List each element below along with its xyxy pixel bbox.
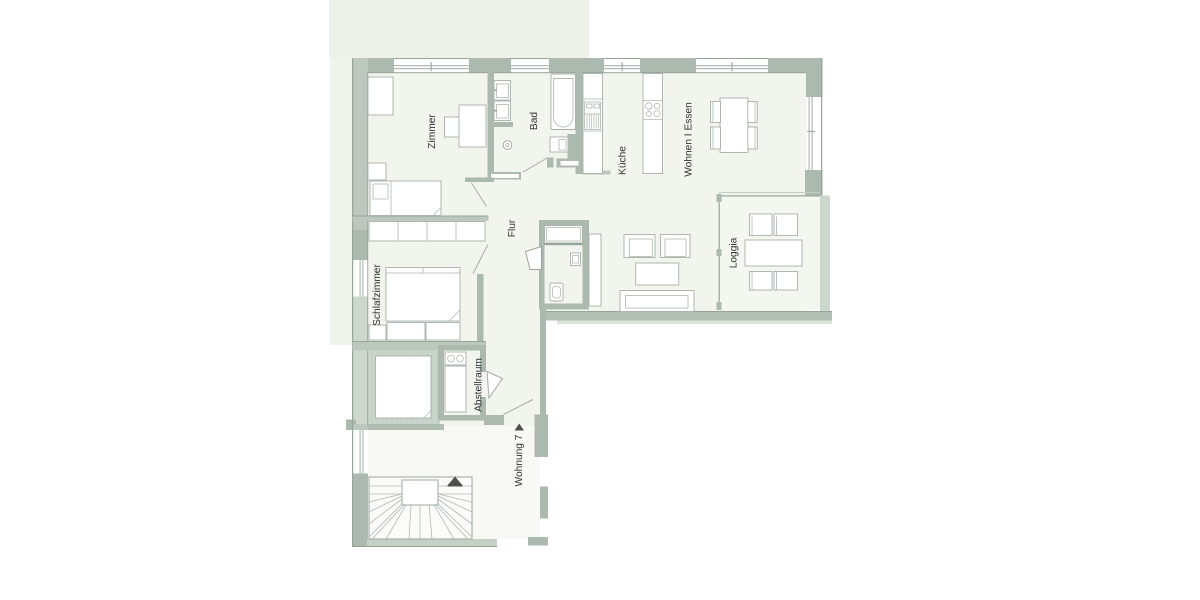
svg-text:Wohnung 7: Wohnung 7 [514, 434, 525, 486]
svg-text:Schlafzimmer: Schlafzimmer [372, 264, 383, 326]
svg-text:Loggia: Loggia [729, 237, 740, 268]
svg-text:Wohnen I Essen: Wohnen I Essen [684, 102, 695, 177]
svg-text:Küche: Küche [618, 146, 629, 175]
svg-text:Zimmer: Zimmer [427, 114, 438, 149]
svg-text:Flur: Flur [507, 219, 518, 237]
svg-text:Abstellraum: Abstellraum [474, 358, 485, 412]
svg-text:Bad: Bad [529, 112, 540, 130]
